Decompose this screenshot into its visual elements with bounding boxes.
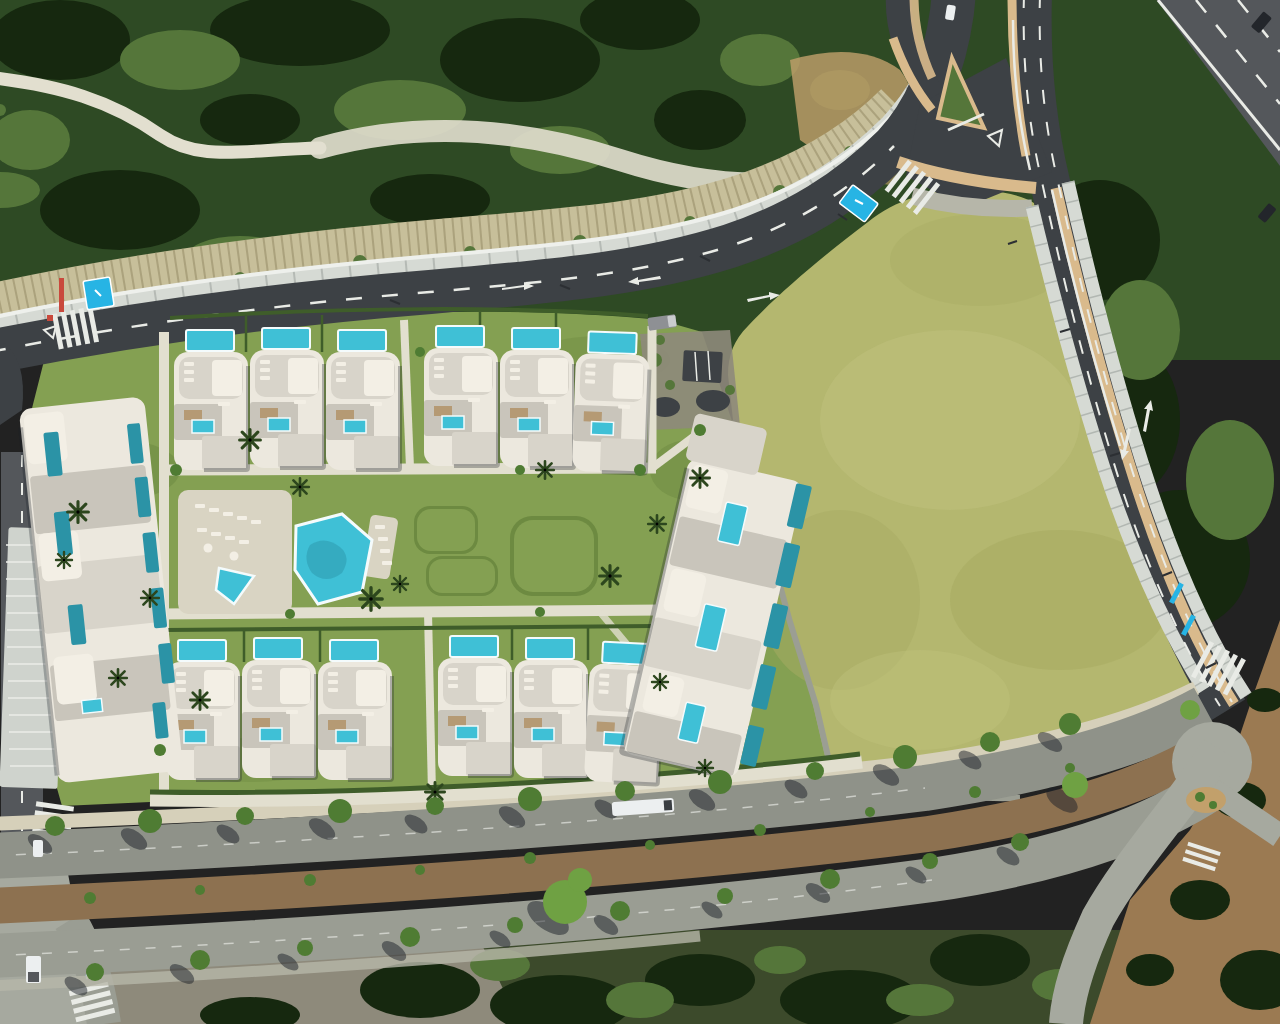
car-left-road [33, 840, 43, 857]
truck-bottom-left [26, 956, 41, 983]
aerial-photo: 30 [0, 0, 1280, 1024]
